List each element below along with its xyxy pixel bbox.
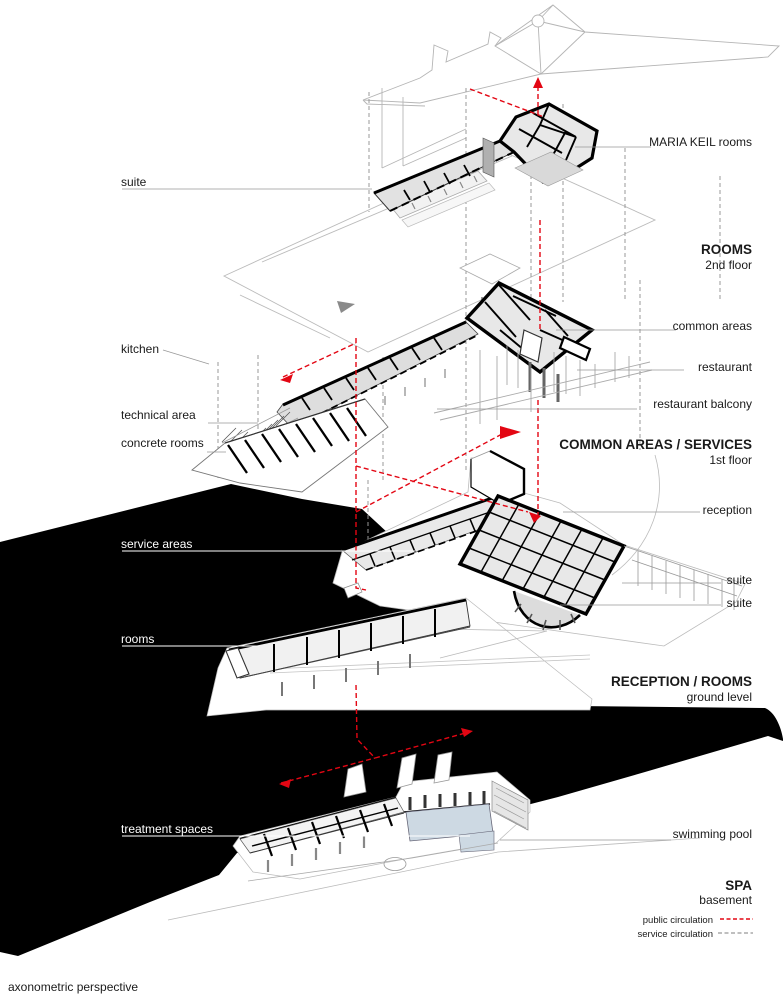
svg-text:suite: suite [727, 596, 753, 610]
svg-text:kitchen: kitchen [121, 342, 159, 356]
svg-text:service areas: service areas [121, 537, 192, 551]
svg-text:public circulation: public circulation [643, 915, 713, 926]
svg-text:restaurant balcony: restaurant balcony [653, 397, 752, 411]
svg-text:2nd floor: 2nd floor [705, 258, 752, 272]
svg-text:RECEPTION / ROOMS: RECEPTION / ROOMS [611, 674, 752, 689]
svg-text:common areas: common areas [673, 319, 752, 333]
svg-text:service circulation: service circulation [638, 929, 714, 940]
svg-text:axonometric perspective: axonometric perspective [8, 980, 138, 994]
svg-text:COMMON AREAS / SERVICES: COMMON AREAS / SERVICES [559, 437, 752, 452]
svg-text:swimming pool: swimming pool [673, 827, 752, 841]
svg-text:ROOMS: ROOMS [701, 242, 752, 257]
svg-text:MARIA KEIL rooms: MARIA KEIL rooms [649, 135, 752, 149]
svg-text:treatment spaces: treatment spaces [121, 822, 213, 836]
svg-text:technical area: technical area [121, 408, 196, 422]
svg-text:concrete rooms: concrete rooms [121, 436, 204, 450]
svg-text:SPA: SPA [725, 878, 752, 893]
svg-text:rooms: rooms [121, 632, 154, 646]
svg-text:ground level: ground level [687, 690, 752, 704]
svg-text:suite: suite [727, 573, 753, 587]
svg-text:suite: suite [121, 175, 147, 189]
svg-text:1st floor: 1st floor [709, 453, 752, 467]
svg-text:reception: reception [703, 503, 752, 517]
svg-text:restaurant: restaurant [698, 360, 753, 374]
svg-text:basement: basement [699, 893, 752, 907]
